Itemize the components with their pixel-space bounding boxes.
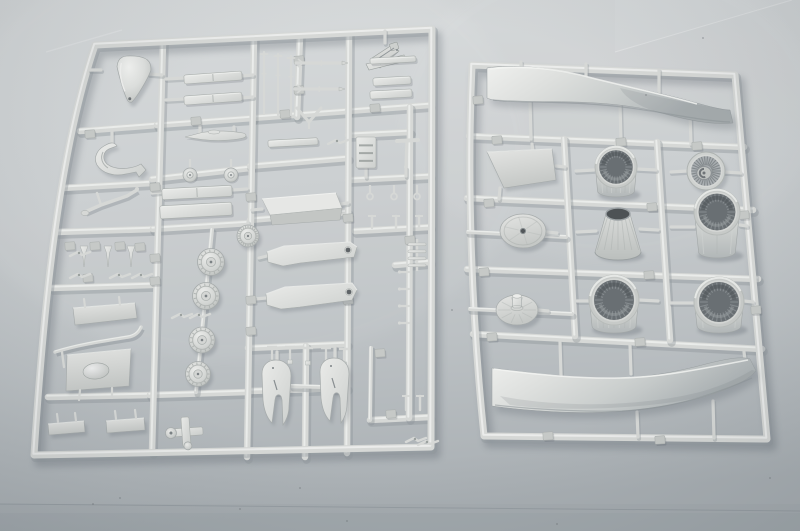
photo-model-kit-sprues [0,0,800,531]
vignette [0,0,800,531]
photo-artifacts [0,0,800,531]
scene-svg [0,0,800,531]
